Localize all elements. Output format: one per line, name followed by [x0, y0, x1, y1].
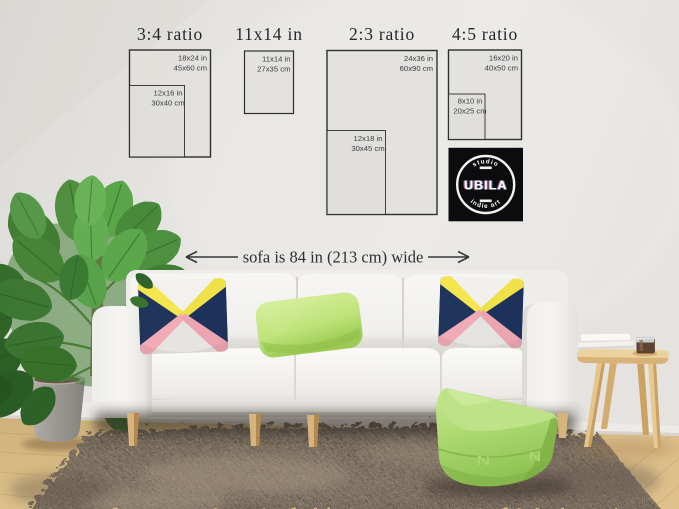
- svg-text:UBILA: UBILA: [464, 179, 507, 193]
- svg-text:40x50 cm: 40x50 cm: [485, 64, 518, 73]
- svg-text:11x14 in: 11x14 in: [262, 55, 291, 64]
- svg-text:11x14 in: 11x14 in: [235, 24, 303, 44]
- svg-text:8x10 in: 8x10 in: [458, 97, 483, 106]
- svg-text:20x25 cm: 20x25 cm: [453, 107, 486, 116]
- svg-text:3:4 ratio: 3:4 ratio: [137, 24, 203, 44]
- svg-text:2:3 ratio: 2:3 ratio: [349, 24, 415, 44]
- svg-text:12x18 in: 12x18 in: [353, 134, 382, 143]
- svg-text:4:5 ratio: 4:5 ratio: [452, 24, 518, 44]
- svg-text:30x45 cm: 30x45 cm: [351, 144, 384, 153]
- svg-text:27x35 cm: 27x35 cm: [257, 65, 290, 74]
- svg-text:24x36 in: 24x36 in: [404, 54, 433, 63]
- svg-text:18x24 in: 18x24 in: [178, 54, 207, 63]
- svg-text:60x90 cm: 60x90 cm: [400, 64, 433, 73]
- svg-text:16x20 in: 16x20 in: [489, 54, 518, 63]
- svg-text:sofa is 84 in (213 cm) wide: sofa is 84 in (213 cm) wide: [243, 248, 424, 267]
- svg-text:30x40 cm: 30x40 cm: [151, 99, 184, 108]
- svg-text:12x16 in: 12x16 in: [153, 89, 182, 98]
- svg-text:45x60 cm: 45x60 cm: [174, 64, 207, 73]
